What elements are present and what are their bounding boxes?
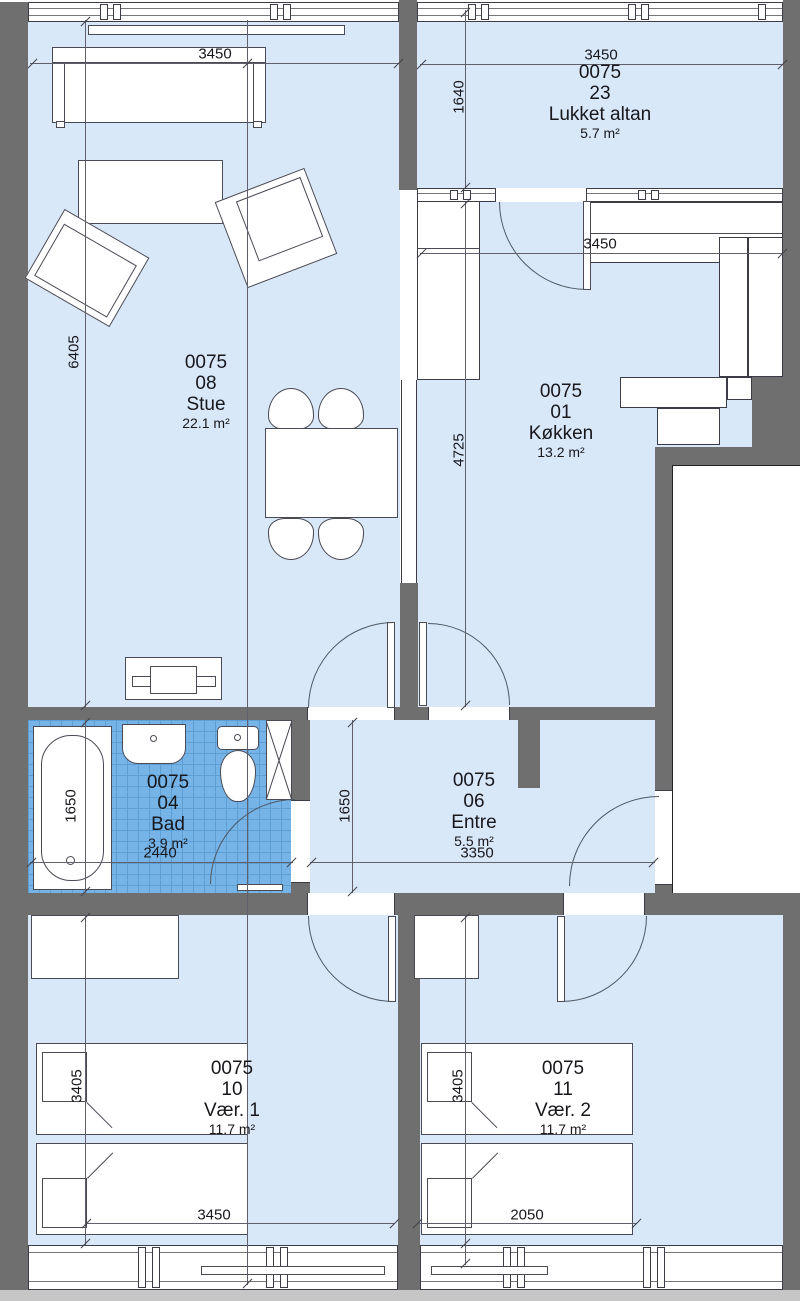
sofa-foot — [253, 121, 262, 128]
room-code: 0075 — [451, 770, 496, 791]
room-name: Køkken — [529, 423, 593, 444]
room-name: Stue — [182, 394, 229, 415]
window-mullion — [283, 4, 291, 20]
dim-line — [30, 862, 293, 863]
dim-text-kitchen-height: 4725 — [451, 433, 468, 466]
bathtub-drain — [66, 856, 75, 865]
wall-left-exterior — [0, 2, 28, 1290]
radiator — [431, 1266, 548, 1275]
wall-bedroom2-right — [783, 915, 800, 1290]
wall-stue-bad-horizontal — [28, 707, 307, 720]
room-area: 5.5 m² — [451, 833, 496, 850]
room-code: 0075 — [549, 62, 651, 83]
window-mullion — [651, 190, 659, 200]
room-code: 0075 — [182, 352, 229, 373]
kitchen-counter-right — [719, 237, 748, 377]
room-code: 0075 — [204, 1058, 260, 1079]
dim-text-bad-height: 1650 — [63, 789, 80, 822]
wall-entre-right-below-door — [655, 885, 672, 893]
wall-mid-horizontal-left — [0, 893, 307, 915]
room-label-lukket-altan: 0075 23 Lukket altan 5.7 m² — [549, 62, 651, 142]
wall-kitchen-south-band — [655, 447, 800, 465]
bathroom-cabinet — [266, 720, 292, 800]
room-number: 23 — [549, 83, 651, 104]
wall-entre-right — [655, 465, 672, 790]
window-mullion — [628, 4, 636, 20]
room-number: 11 — [535, 1079, 591, 1100]
room-area: 13.2 m² — [529, 444, 593, 461]
wall-between-doors — [395, 707, 428, 720]
window-balcony-inner — [417, 188, 783, 202]
room-area: 22.1 m² — [182, 415, 229, 432]
stairwell-area — [672, 465, 800, 893]
room-code: 0075 — [147, 772, 189, 793]
window-mullion — [643, 1247, 651, 1288]
window-mullion — [138, 1247, 146, 1288]
window-mullion — [638, 190, 646, 200]
room-name: Vær. 1 — [204, 1100, 260, 1121]
door-opening-balcony — [495, 188, 587, 202]
wall-stue-balcony-divider — [399, 0, 417, 190]
room-area: 11.7 m² — [535, 1121, 591, 1138]
room-name: Bad — [147, 814, 189, 835]
room-number: 08 — [182, 373, 229, 394]
room-label-bad: 0075 04 Bad 3.9 m² — [147, 772, 189, 852]
dim-line — [420, 253, 783, 254]
window-top-left — [28, 2, 399, 22]
window-mullion — [270, 4, 278, 20]
dim-text-stue-width: 3450 — [198, 46, 231, 63]
room-label-koekken: 0075 01 Køkken 13.2 m² — [529, 381, 593, 461]
passage-stue-kitchen — [401, 380, 417, 583]
door-opening-kitchen-entre — [428, 707, 510, 720]
wardrobe — [31, 915, 179, 979]
dim-line — [85, 20, 86, 707]
kitchen-lower-counter-1 — [620, 377, 727, 408]
dining-table — [265, 428, 398, 518]
door-opening-bedroom2 — [563, 893, 645, 915]
wall-mid-horizontal-center — [395, 893, 563, 915]
room-name: Lukket altan — [549, 104, 651, 125]
room-label-entre: 0075 06 Entre 5.5 m² — [451, 770, 496, 850]
dim-text-balcony-depth: 1640 — [451, 80, 468, 113]
bathroom-sink — [122, 724, 186, 764]
dim-text-bed-length: 2050 — [510, 1207, 543, 1224]
window-mullion — [100, 4, 108, 20]
door-opening-stue-entre — [307, 707, 395, 720]
door-opening-bedroom1 — [307, 893, 395, 915]
wall-stue-kitchen-divider — [400, 583, 418, 720]
wall-entre-stub — [518, 720, 540, 788]
wall-mid-horizontal-right — [645, 893, 800, 915]
wall-bad-right-lower — [291, 883, 310, 893]
room-area: 5.7 m² — [549, 125, 651, 142]
room-number: 06 — [451, 791, 496, 812]
kitchen-lower-counter-3 — [727, 377, 752, 400]
room-label-vaer-1: 0075 10 Vær. 1 11.7 m² — [204, 1058, 260, 1138]
sofa-foot — [56, 121, 65, 128]
window-mullion — [758, 4, 766, 20]
dim-text-bedroom1-width: 3450 — [197, 1207, 230, 1224]
window-mullion — [113, 4, 121, 20]
window-mullion — [481, 4, 489, 20]
wardrobe — [414, 915, 479, 979]
window-mullion — [152, 1247, 160, 1288]
dim-text-balcony-width: 3450 — [584, 47, 617, 64]
room-name: Vær. 2 — [535, 1100, 591, 1121]
room-number: 01 — [529, 402, 593, 423]
room-name: Entre — [451, 812, 496, 833]
room-code: 0075 — [535, 1058, 591, 1079]
room-label-stue: 0075 08 Stue 22.1 m² — [182, 352, 229, 432]
room-code: 0075 — [529, 381, 593, 402]
radiator — [201, 1266, 385, 1275]
kitchen-lower-counter-2 — [657, 408, 720, 445]
room-area: 11.7 m² — [204, 1121, 260, 1138]
bottom-slab-edge — [0, 1290, 800, 1301]
dim-text-entre-height: 1650 — [337, 789, 354, 822]
dim-text-bedroom2-height: 3405 — [450, 1069, 467, 1102]
dim-text-bedroom1-height: 3405 — [69, 1069, 86, 1102]
bath-mat — [237, 884, 283, 891]
dim-line — [85, 1223, 395, 1224]
dim-text-kitchen-width: 3450 — [583, 236, 616, 253]
wall-bad-right-upper — [291, 720, 310, 800]
window-mullion — [450, 190, 458, 200]
wall-kitchen-entre-horizontal — [510, 707, 655, 720]
room-number: 10 — [204, 1079, 260, 1100]
floor-plan: 3450 6405 3450 1640 3450 4725 1650 2440 … — [0, 0, 800, 1301]
window-mullion — [657, 1247, 665, 1288]
kitchen-tall-cupboard — [417, 200, 480, 380]
room-area: 3.9 m² — [147, 835, 189, 852]
kitchen-door-leaf — [419, 622, 427, 706]
sideboard — [125, 657, 222, 700]
radiator — [88, 25, 345, 35]
dim-line — [310, 862, 655, 863]
window-mullion — [641, 4, 649, 20]
dim-line — [85, 720, 86, 893]
toilet-flush-button — [234, 734, 241, 741]
sink-faucet — [150, 735, 157, 742]
room-number: 04 — [147, 793, 189, 814]
dim-text-stue-height: 6405 — [66, 335, 83, 368]
room-label-vaer-2: 0075 11 Vær. 2 11.7 m² — [535, 1058, 591, 1138]
coffee-table — [78, 160, 223, 224]
